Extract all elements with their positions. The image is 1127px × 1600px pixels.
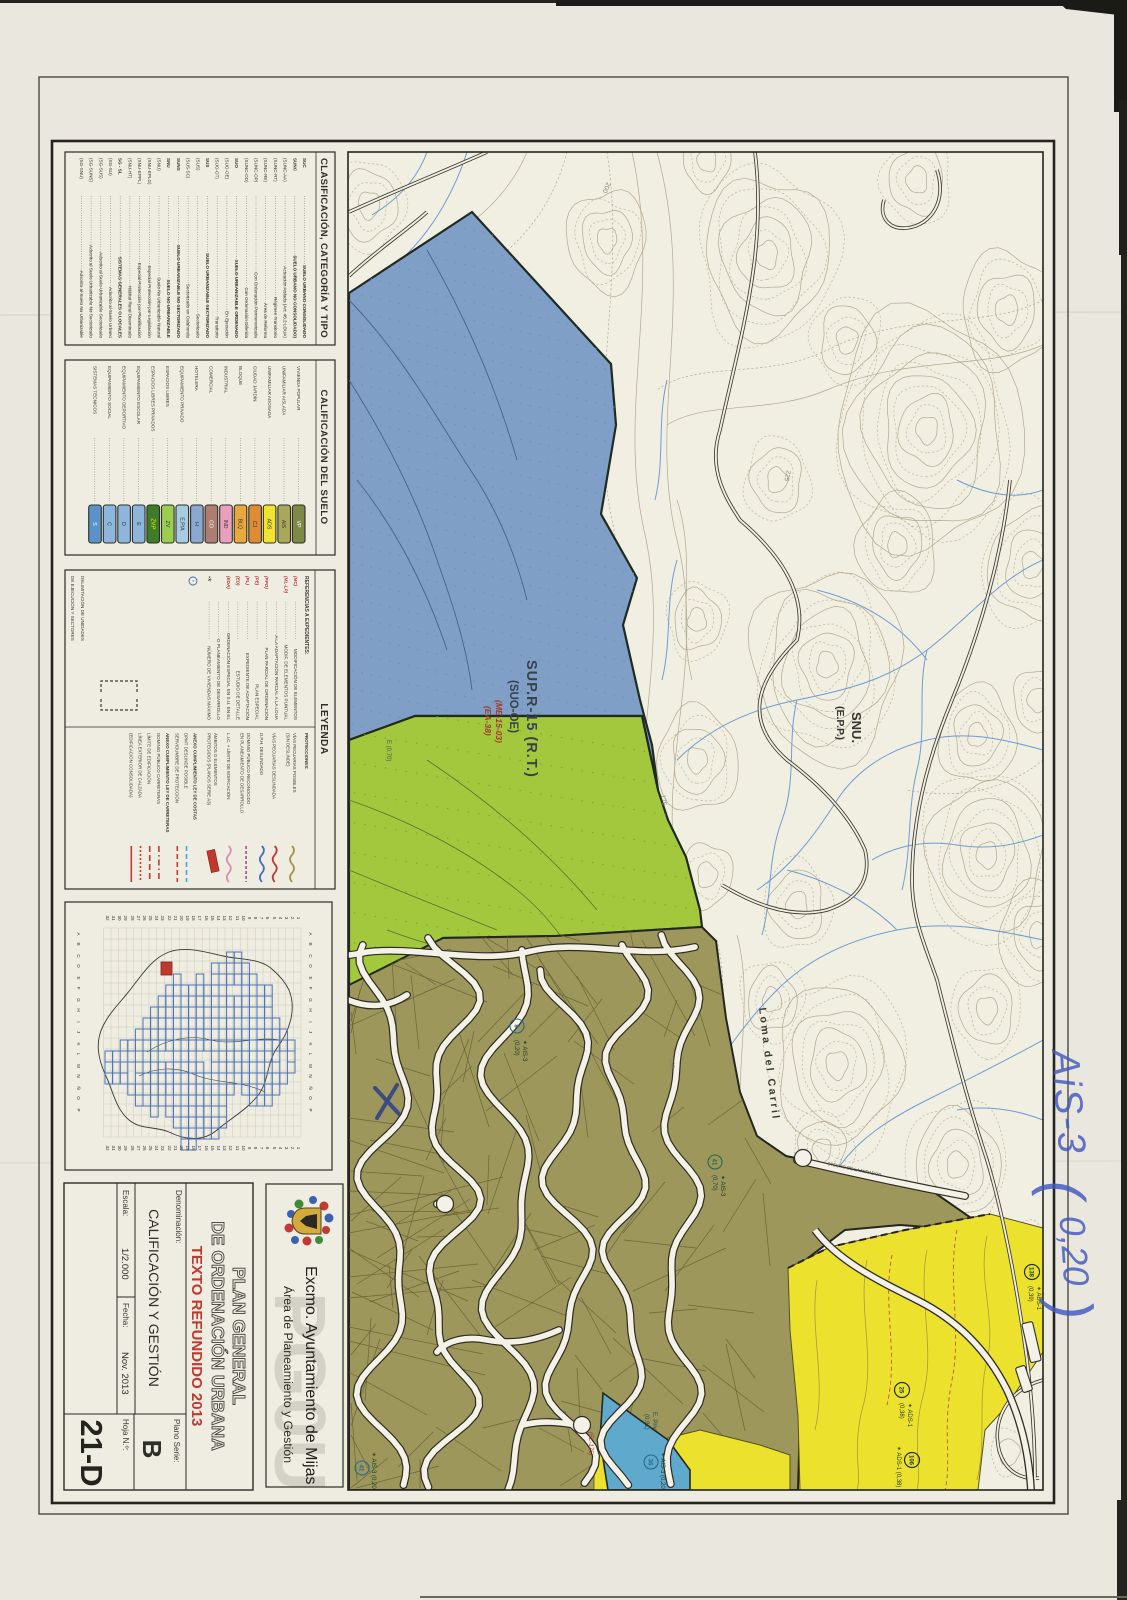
svg-text:(MC): (MC)	[293, 576, 298, 587]
svg-text:14: 14	[216, 1145, 221, 1151]
svg-text:DOMINIO PÚBLICO CARRETERAS: DOMINIO PÚBLICO CARRETERAS	[156, 733, 161, 804]
svg-text:28: 28	[130, 1145, 135, 1151]
svg-text:(SUO-OE): (SUO-OE)	[507, 680, 519, 733]
svg-text:Fecha:: Fecha:	[121, 1303, 130, 1327]
svg-text:2: 2	[290, 1147, 295, 1150]
svg-text:VP: VP	[295, 521, 301, 528]
svg-text:E: E	[308, 976, 313, 979]
svg-text:HOTELERA: HOTELERA	[194, 366, 199, 392]
svg-text:21: 21	[173, 1145, 178, 1151]
svg-text:(SNU-HT): (SNU-HT)	[127, 158, 132, 179]
svg-text:EN PLANEAMIENTO DE DESARROLLO: EN PLANEAMIENTO DE DESARROLLO	[240, 733, 245, 814]
svg-text:ANEXO CUMPLIMIENTO LEY DE CARR: ANEXO CUMPLIMIENTO LEY DE CARRETERAS	[165, 733, 170, 832]
svg-text:✶ AIS-3 (0,20): ✶ AIS-3 (0,20)	[659, 1452, 666, 1491]
svg-text:(SUNC-OP): (SUNC-OP)	[254, 158, 259, 183]
svg-text:29: 29	[123, 915, 128, 921]
svg-text:TEXTO REFUNDIDO 2013: TEXTO REFUNDIDO 2013	[188, 1246, 205, 1427]
svg-text:BLQ: BLQ	[237, 519, 243, 529]
svg-text:ÁMBITOS O ELEMENTOS: ÁMBITOS O ELEMENTOS	[213, 733, 218, 786]
svg-text:3: 3	[284, 917, 289, 920]
svg-text:1/2.000: 1/2.000	[119, 1248, 130, 1280]
svg-text:9: 9	[247, 1147, 252, 1150]
svg-text:SG - SL: SG - SL	[118, 158, 123, 175]
svg-text:20: 20	[179, 915, 184, 921]
svg-text:Hoja N.º:: Hoja N.º:	[121, 1419, 130, 1451]
svg-text:14: 14	[216, 915, 221, 921]
svg-text:(SG-SUNS): (SG-SUNS)	[89, 158, 94, 182]
svg-text:EXPEDIENTE DE ADAPTACIÓN: EXPEDIENTE DE ADAPTACIÓN	[245, 653, 251, 720]
svg-text:(0,38): (0,38)	[898, 1403, 904, 1419]
svg-text:E. Priv: E. Priv	[651, 1412, 657, 1430]
svg-text:PLAN GENERAL: PLAN GENERAL	[229, 1267, 249, 1405]
svg-text:11: 11	[235, 916, 240, 921]
svg-text:Sectorizado: Sectorizado	[195, 314, 200, 339]
svg-text:20: 20	[179, 1145, 184, 1151]
svg-text:(SNU): (SNU)	[157, 158, 162, 171]
svg-text:✶ ADS-1: ✶ ADS-1	[906, 1403, 913, 1428]
svg-text:(SG-SNU): (SG-SNU)	[79, 158, 84, 179]
svg-text:ESPACIOS LIBRES PRIVADOS: ESPACIOS LIBRES PRIVADOS	[151, 366, 156, 431]
svg-text:SUP.R-15 (R.T.): SUP.R-15 (R.T.)	[523, 660, 539, 778]
svg-text:J: J	[308, 1031, 313, 1033]
svg-text:(PL): (PL)	[245, 576, 250, 585]
svg-text:Sectorizado en Calahonda: Sectorizado en Calahonda	[186, 284, 191, 339]
svg-text:19: 19	[185, 1145, 190, 1151]
svg-text:26: 26	[142, 1145, 147, 1151]
svg-text:ESTUDIO DE DETALLE: ESTUDIO DE DETALLE	[235, 671, 240, 720]
svg-text:✶ ADS-1 (0,38): ✶ ADS-1 (0,38)	[895, 1446, 902, 1487]
svg-text:CIUDAD JARDÍN: CIUDAD JARDÍN	[252, 366, 258, 401]
svg-text:(SG-SU): (SG-SU)	[108, 158, 113, 176]
svg-text:VIVIENDA POPULAR: VIVIENDA POPULAR	[296, 366, 301, 411]
svg-text:Adscrito al Suelo Urbanizable: Adscrito al Suelo Urbanizable No Sectori…	[89, 245, 94, 338]
svg-text:16: 16	[204, 915, 209, 921]
svg-text:7: 7	[259, 1147, 264, 1150]
svg-text:Plano Serie:: Plano Serie:	[172, 1419, 181, 1463]
svg-text:31: 31	[111, 915, 116, 921]
svg-text:P: P	[76, 1108, 81, 1111]
svg-text:SISTEMAS GENERALES O LOCALES: SISTEMAS GENERALES O LOCALES	[118, 257, 123, 338]
svg-text:DE ORDENACIÓN URBANA: DE ORDENACIÓN URBANA	[208, 1221, 229, 1451]
svg-text:B: B	[137, 1440, 167, 1459]
svg-text:21-D: 21-D	[74, 1419, 109, 1486]
svg-text:(SUO-OE): (SUO-OE)	[224, 158, 229, 180]
svg-text:PLAN ESPECIAL: PLAN ESPECIAL	[255, 684, 260, 720]
svg-text:ANEXO CUMPLIMIENTO LEY DE COST: ANEXO CUMPLIMIENTO LEY DE COSTAS	[193, 733, 198, 820]
svg-text:15: 15	[210, 915, 215, 921]
svg-text:13: 13	[222, 1145, 227, 1151]
svg-text:INDUSTRIAL: INDUSTRIAL	[223, 366, 228, 394]
svg-text:Ñ: Ñ	[308, 1086, 314, 1089]
svg-text:12: 12	[228, 1145, 233, 1151]
svg-text:41: 41	[711, 1159, 717, 1166]
svg-text:E (0,70): E (0,70)	[385, 740, 391, 761]
svg-text:(SUNC-RT): (SUNC-RT)	[273, 158, 278, 182]
svg-text:SUO: SUO	[234, 158, 239, 168]
svg-text:(SUS-SC): (SUS-SC)	[186, 158, 191, 179]
svg-text:CLASIFICACIÓN, CATEGORÍA Y TIP: CLASIFICACIÓN, CATEGORÍA Y TIPO	[318, 158, 330, 338]
svg-text:PLAN PARCIAL DE ORDENACIÓN: PLAN PARCIAL DE ORDENACIÓN	[264, 648, 270, 721]
svg-text:SUNS: SUNS	[176, 158, 181, 171]
svg-text:26: 26	[142, 915, 147, 921]
svg-text:Adscrito al Suelo Urbano: Adscrito al Suelo Urbano	[108, 287, 113, 338]
svg-text:(EDA): (EDA)	[226, 576, 231, 589]
svg-text:H: H	[308, 1008, 313, 1011]
svg-text:NÚMERO DE VIVIENDAS MÁXIMO: NÚMERO DE VIVIENDAS MÁXIMO	[207, 646, 213, 720]
svg-text:8: 8	[253, 917, 258, 920]
svg-text:J: J	[76, 1031, 81, 1033]
svg-text:En Ejecución: En Ejecución	[224, 311, 229, 338]
svg-text:SUNC: SUNC	[292, 158, 297, 172]
svg-text:AiS-3: AiS-3	[1043, 1046, 1093, 1156]
svg-text:27: 27	[136, 915, 141, 921]
svg-text:(ML-LP): (ML-LP)	[283, 576, 288, 594]
svg-text:22: 22	[167, 1145, 172, 1151]
svg-text:DELIMITACIÓN DE UNIDADES: DELIMITACIÓN DE UNIDADES	[80, 576, 86, 641]
svg-text:4: 4	[278, 917, 283, 920]
svg-text:(EDIFICACIÓN CONSOLIDADA): (EDIFICACIÓN CONSOLIDADA)	[128, 733, 133, 798]
svg-text:Con Ordenación Pormenorizada: Con Ordenación Pormenorizada	[254, 272, 259, 338]
svg-text:O PLANEAMIENTO DE DESARROLLO: O PLANEAMIENTO DE DESARROLLO	[216, 639, 221, 721]
svg-text:30: 30	[117, 1145, 122, 1151]
svg-text:(EA-38): (EA-38)	[483, 706, 493, 736]
svg-text:(SNU-EPPL): (SNU-EPPL)	[137, 158, 142, 185]
svg-text:10: 10	[241, 915, 246, 921]
svg-text:Suelo No Urbanizable Natural: Suelo No Urbanizable Natural	[157, 277, 162, 338]
svg-text:(E.P.P.): (E.P.P.)	[834, 706, 846, 740]
svg-text:(SUS): (SUS)	[195, 158, 200, 171]
svg-text:ESPACIOS LIBRES: ESPACIOS LIBRES	[165, 366, 170, 407]
svg-text:Transitorio: Transitorio	[215, 316, 220, 338]
svg-text:32: 32	[105, 915, 110, 921]
svg-text:24: 24	[154, 915, 159, 921]
svg-text:28: 28	[130, 915, 135, 921]
svg-text:CO: CO	[208, 520, 214, 528]
svg-text:BLOQUE: BLOQUE	[238, 366, 243, 385]
svg-text:LÍNEA EXTERIOR DE CALZADA: LÍNEA EXTERIOR DE CALZADA	[138, 733, 143, 798]
svg-text:(0,91): (0,91)	[643, 1414, 649, 1430]
svg-text:SUELO URBANO NO CONSOLIDADO): SUELO URBANO NO CONSOLIDADO)	[292, 255, 297, 338]
svg-text:✶ AIS-3 (0,20): ✶ AIS-3 (0,20)	[370, 1452, 377, 1491]
svg-text:PROTEGIDOS (PLANOS SERIE A3): PROTEGIDOS (PLANOS SERIE A3)	[207, 733, 212, 806]
svg-text:EQUIPAMIENTO PRIVADO: EQUIPAMIENTO PRIVADO	[180, 366, 185, 423]
svg-text:Actuación Aislada (Art. 45.2 L: Actuación Aislada (Art. 45.2 LOUA)	[283, 266, 288, 338]
svg-text:Adscrito al Suelo Urbanizable: Adscrito al Suelo Urbanizable Sectorizad…	[98, 252, 103, 338]
svg-text:✶ AIS-3: ✶ AIS-3	[521, 1040, 528, 1062]
svg-text:25: 25	[148, 915, 153, 921]
svg-text:H: H	[193, 522, 199, 526]
svg-text:L.I.C. + LÍMITE DE EDIFICACIÓN: L.I.C. + LÍMITE DE EDIFICACIÓN	[226, 733, 231, 799]
svg-text:17: 17	[197, 915, 202, 921]
svg-text:B: B	[76, 942, 81, 945]
svg-text:30: 30	[117, 915, 122, 921]
svg-text:25: 25	[148, 1145, 153, 1151]
svg-text:Especial Protección por Planif: Especial Protección por Planificación	[137, 263, 142, 339]
svg-text:I: I	[76, 1021, 81, 1022]
svg-text:*: *	[203, 578, 213, 582]
svg-text:27: 27	[136, 1145, 141, 1151]
svg-text:H: H	[76, 1008, 81, 1011]
svg-text:G: G	[308, 998, 313, 1002]
svg-text:AIS: AIS	[280, 520, 286, 529]
svg-text:(0,20): (0,20)	[513, 1040, 519, 1056]
svg-text:REFERENCIAS A EXPEDIENTES:: REFERENCIAS A EXPEDIENTES:	[303, 576, 309, 655]
svg-text:(SUNC-OD): (SUNC-OD)	[244, 158, 249, 183]
svg-text:8: 8	[253, 1147, 258, 1150]
svg-text:D.P.H. DESLINDADO: D.P.H. DESLINDADO	[259, 733, 264, 776]
svg-text:Escala:: Escala:	[121, 1190, 130, 1216]
svg-text:EQUIPAMIENTO DEPORTIVO: EQUIPAMIENTO DEPORTIVO	[121, 366, 126, 429]
svg-text:C: C	[106, 522, 112, 526]
svg-text:4: 4	[278, 1147, 283, 1150]
svg-text:D: D	[120, 522, 126, 526]
svg-text:(SUO-OT): (SUO-OT)	[215, 158, 220, 179]
svg-text:Nov. 2013: Nov. 2013	[119, 1352, 130, 1395]
svg-text:CALIFICACIÓN Y GESTIÓN: CALIFICACIÓN Y GESTIÓN	[146, 1209, 162, 1387]
svg-text:(PPO): (PPO)	[264, 576, 269, 589]
svg-text:Área de Planeamiento y Gestión: Área de Planeamiento y Gestión	[281, 1286, 296, 1463]
svg-text:41: 41	[358, 1465, 364, 1472]
svg-text:31: 31	[111, 1145, 116, 1151]
svg-text:23: 23	[160, 1145, 165, 1151]
svg-text:SUC: SUC	[302, 158, 307, 168]
svg-text:SERVIDUMBRE DE PROTECCIÓN: SERVIDUMBRE DE PROTECCIÓN	[174, 733, 179, 803]
svg-text:SUELO URBANIZABLE SECTORIZADO: SUELO URBANIZABLE SECTORIZADO	[205, 253, 210, 338]
svg-text:O: O	[76, 1096, 81, 1100]
svg-text:5: 5	[272, 917, 277, 920]
svg-text:10: 10	[241, 1145, 246, 1151]
svg-text:Área de Reforma: Área de Reforma	[263, 303, 269, 338]
svg-text:18: 18	[191, 1145, 196, 1151]
svg-text:(0,70): (0,70)	[711, 1175, 717, 1191]
svg-text:7: 7	[259, 917, 264, 920]
svg-text:(EL-175): (EL-175)	[587, 1432, 593, 1455]
svg-text:13: 13	[222, 915, 227, 921]
svg-text:E: E	[76, 976, 81, 979]
svg-text:Excmo. Ayuntamiento de Mijas: Excmo. Ayuntamiento de Mijas	[302, 1266, 319, 1484]
svg-text:B: B	[308, 942, 313, 945]
svg-text:PG0U: PG0U	[259, 1292, 339, 1492]
svg-text:Denominación:: Denominación:	[174, 1190, 183, 1243]
svg-text:16: 16	[204, 1145, 209, 1151]
svg-text:3: 3	[284, 1147, 289, 1150]
svg-text:1: 1	[296, 1147, 301, 1150]
svg-text:Ñ: Ñ	[76, 1086, 82, 1089]
svg-text:N: N	[308, 1074, 313, 1077]
svg-text:S: S	[91, 522, 97, 526]
svg-text:9: 9	[247, 917, 252, 920]
svg-text:15: 15	[210, 1145, 215, 1151]
svg-text:O: O	[308, 1096, 313, 1100]
svg-text:SUELO URBANIZABLE ORDENADO: SUELO URBANIZABLE ORDENADO	[234, 260, 239, 339]
svg-text:32: 32	[105, 1145, 110, 1151]
svg-text:1: 1	[296, 917, 301, 920]
svg-text:LÍMITE DE EDIFICACIÓN: LÍMITE DE EDIFICACIÓN	[147, 733, 152, 784]
svg-text:✶ AIS-3: ✶ AIS-3	[719, 1175, 726, 1197]
svg-text:F: F	[76, 987, 81, 990]
svg-text:5: 5	[272, 1147, 277, 1150]
svg-text:ZV.P: ZV.P	[149, 518, 155, 530]
svg-text:Adscrito al Suelo No Urbanizab: Adscrito al Suelo No Urbanizable	[79, 271, 84, 339]
svg-text:E.P/A: E.P/A	[178, 517, 184, 531]
svg-text:DOMINIO PÚBLICO RECONOCIDO: DOMINIO PÚBLICO RECONOCIDO	[246, 733, 251, 805]
svg-text:(SUNC-RE): (SUNC-RE)	[263, 158, 268, 182]
svg-text:Régimen Transitorio: Régimen Transitorio	[273, 297, 278, 339]
svg-text:P: P	[308, 1108, 313, 1111]
svg-text:E: E	[135, 522, 141, 526]
svg-text:6: 6	[265, 917, 270, 920]
svg-text:ORDENACIÓN ESPECIAL EN S.U. EN: ORDENACIÓN ESPECIAL EN S.U. EN EL	[226, 633, 232, 721]
svg-text:VÍAS PECUARIAS DESLINDADA: VÍAS PECUARIAS DESLINDADA	[272, 733, 277, 799]
svg-text:PROTECCIONES:: PROTECCIONES:	[304, 733, 309, 770]
svg-text:(ME-15-03): (ME-15-03)	[494, 700, 504, 743]
svg-text:CJ: CJ	[251, 521, 257, 528]
svg-text:MODIF. DE ELEMENTOS PUNTUAL: MODIF. DE ELEMENTOS PUNTUAL	[283, 645, 288, 721]
svg-text:29: 29	[123, 1145, 128, 1151]
svg-text:SNU.: SNU.	[849, 712, 864, 743]
svg-text:SUELO NO URBANIZABLE: SUELO NO URBANIZABLE	[166, 280, 171, 338]
svg-text:SUS: SUS	[205, 158, 210, 167]
svg-text:17: 17	[197, 1145, 202, 1151]
svg-text:22: 22	[167, 915, 172, 921]
svg-text:138: 138	[1028, 1267, 1034, 1278]
svg-text:19: 19	[185, 915, 190, 921]
svg-text:0,20: 0,20	[1052, 1214, 1098, 1287]
svg-text:DPMT DESLINDE POSIBLE: DPMT DESLINDE POSIBLE	[184, 733, 189, 789]
svg-text:2: 2	[290, 917, 295, 920]
svg-text:(ED): (ED)	[235, 576, 240, 586]
svg-text:CALIFICACIÓN DEL SUELO: CALIFICACIÓN DEL SUELO	[318, 390, 330, 525]
svg-text:SUELO URBANIZABLE NO SECTORIZA: SUELO URBANIZABLE NO SECTORIZADO	[176, 245, 181, 338]
svg-text:Con Ordenación Diferida: Con Ordenación Diferida	[244, 287, 249, 338]
svg-text:Especial Protección por Legisl: Especial Protección por Legislación	[147, 265, 152, 338]
svg-text:11: 11	[235, 1146, 240, 1151]
svg-text:IND: IND	[222, 520, 228, 529]
svg-text:(SNU-EPLG): (SNU-EPLG)	[147, 158, 152, 185]
svg-text:EQUIPAMIENTO SOCIAL: EQUIPAMIENTO SOCIAL	[107, 366, 112, 419]
svg-text:ZV: ZV	[164, 521, 170, 528]
svg-text:(SIN DESLINDE): (SIN DESLINDE)	[286, 733, 291, 767]
svg-text:EQUIPAMIENTO ESCOLAR: EQUIPAMIENTO ESCOLAR	[136, 366, 141, 425]
svg-text:VÍAS PECUARIAS POSIBLES: VÍAS PECUARIAS POSIBLES	[292, 733, 297, 793]
svg-text:23: 23	[160, 915, 165, 921]
svg-text:F: F	[308, 987, 313, 990]
svg-text:ADS: ADS	[266, 519, 272, 530]
svg-text:*: *	[189, 580, 195, 582]
svg-text:36: 36	[647, 1459, 653, 1466]
svg-text:G: G	[76, 998, 81, 1002]
svg-text:(SUNC-AA): (SUNC-AA)	[283, 158, 288, 182]
svg-text:6: 6	[265, 1147, 270, 1150]
svg-text:SUELO URBANO CONSOLIDADO: SUELO URBANO CONSOLIDADO	[302, 265, 307, 338]
svg-text:I: I	[308, 1021, 313, 1022]
svg-text:A LA ADAPTACIÓN PARCIAL A LA L: A LA ADAPTACIÓN PARCIAL A LA LOUA	[274, 635, 280, 721]
svg-text:L: L	[308, 1053, 313, 1056]
svg-text:SNU: SNU	[166, 158, 171, 168]
svg-text:DE EJECUCIÓN Y SECTORES: DE EJECUCIÓN Y SECTORES	[70, 576, 76, 641]
svg-text:24: 24	[154, 1145, 159, 1151]
svg-text:N: N	[76, 1074, 81, 1077]
svg-text:(SG-SUS): (SG-SUS)	[98, 158, 103, 179]
svg-text:UNIFAMILIAR AISLADA: UNIFAMILIAR AISLADA	[282, 366, 287, 416]
svg-text:18: 18	[191, 915, 196, 921]
svg-text:Hábitat Rural Diseminado: Hábitat Rural Diseminado	[127, 286, 132, 339]
svg-text:M: M	[308, 1064, 313, 1068]
svg-text:LEYENDA: LEYENDA	[318, 703, 329, 754]
svg-text:COMERCIAL: COMERCIAL	[209, 366, 214, 394]
svg-text:SISTEMAS TÉCNICOS: SISTEMAS TÉCNICOS	[92, 366, 98, 414]
svg-text:M: M	[76, 1064, 81, 1068]
svg-text:106: 106	[908, 1455, 914, 1466]
svg-text:L: L	[76, 1053, 81, 1056]
svg-text:MODIFICACIÓN DE ELEMENTOS: MODIFICACIÓN DE ELEMENTOS	[293, 649, 299, 720]
svg-text:25: 25	[898, 1387, 904, 1394]
svg-text:21: 21	[173, 915, 178, 921]
svg-text:(0,39): (0,39)	[1027, 1286, 1033, 1302]
svg-text:(PE): (PE)	[255, 576, 260, 586]
svg-text:12: 12	[228, 915, 233, 921]
svg-text:UNIFAMILIAR ADOSADA: UNIFAMILIAR ADOSADA	[267, 366, 272, 419]
